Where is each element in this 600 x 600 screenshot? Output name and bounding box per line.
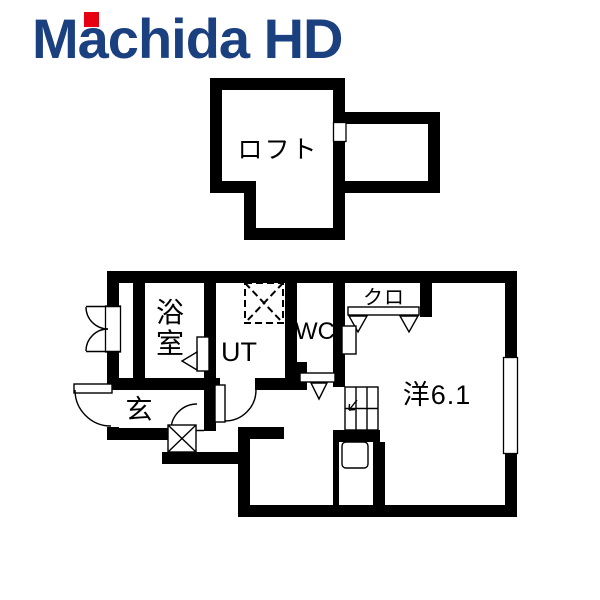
main-room-window [504, 358, 518, 454]
wall-segment [133, 271, 145, 378]
wall-segment [107, 271, 119, 306]
bath-label-char2: 室 [156, 328, 184, 359]
loft-opening-window [334, 123, 347, 142]
door-swing-arc [225, 390, 256, 421]
utility-label: UT [221, 337, 257, 367]
wall-segment [420, 271, 432, 317]
wall-segment [210, 78, 222, 193]
wall-segment [333, 442, 339, 505]
door-direction-triangle [182, 352, 197, 370]
wall-segment [345, 112, 440, 124]
door-direction-triangle [400, 316, 418, 332]
wall-segment [107, 271, 517, 283]
wall-segment [333, 430, 380, 442]
wall-segment [373, 442, 385, 505]
wall-segment [238, 427, 250, 517]
bath-label-char1: 浴 [156, 297, 184, 328]
wall-niche [342, 326, 356, 354]
wall-segment [238, 427, 284, 439]
window-swing-arc [86, 307, 108, 329]
main-room-label: 洋6.1 [403, 380, 472, 410]
stairs-symbol [345, 387, 378, 430]
wall-segment [107, 428, 174, 440]
pipe-space-symbol [168, 425, 196, 452]
door-leaf [74, 384, 112, 393]
entrance-label: 玄 [126, 395, 153, 425]
wall-segment [107, 378, 220, 390]
door-leaf [215, 385, 225, 422]
floorplan-svg: ロフト [0, 0, 600, 600]
wall-segment [428, 112, 440, 193]
toilet-label: WC [295, 318, 335, 345]
closet-door-symbol [348, 307, 419, 332]
door-direction-triangle [311, 383, 327, 399]
wall-segment [162, 452, 246, 464]
ceiling-hatch-symbol [245, 283, 283, 323]
door-swing-arc [75, 390, 111, 426]
closet-label: クロ [363, 286, 405, 309]
door-track [300, 373, 335, 382]
loft-label: ロフト [237, 136, 318, 164]
wall-segment [333, 78, 345, 240]
page: Machida HD ロフト [0, 0, 600, 600]
wall-segment [244, 228, 345, 240]
kitchen-sink [342, 442, 368, 468]
utility-door-symbol [215, 385, 256, 422]
wall-segment [345, 181, 440, 193]
wall-segment [210, 78, 345, 90]
casement-window-symbol [86, 306, 121, 352]
window-swing-arc [86, 329, 108, 351]
wall-segment [238, 505, 517, 517]
bathroom-door-symbol [182, 337, 209, 371]
door-panel [197, 337, 209, 371]
entrance-door-symbol [74, 384, 112, 426]
